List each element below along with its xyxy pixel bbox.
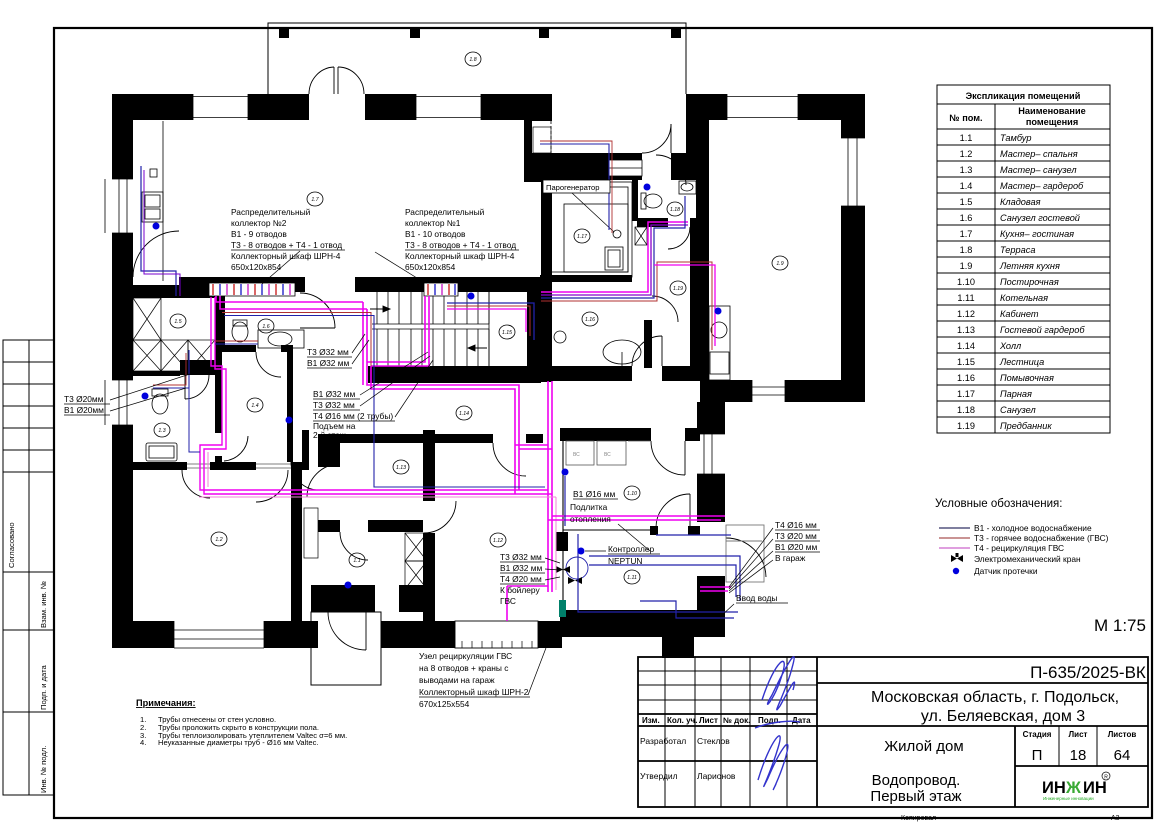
svg-text:Мастер– спальня: Мастер– спальня [1000, 149, 1078, 159]
svg-text:Мастер– гардероб: Мастер– гардероб [1000, 181, 1084, 191]
svg-text:NEPTUN: NEPTUN [608, 556, 642, 566]
svg-text:Датчик протечки: Датчик протечки [974, 566, 1038, 576]
svg-text:650х120х854: 650х120х854 [231, 262, 282, 272]
svg-text:Ж: Ж [1065, 779, 1081, 797]
svg-text:1.11: 1.11 [957, 293, 974, 303]
svg-text:Стадия: Стадия [1023, 730, 1052, 739]
svg-text:Неуказанные диаметры труб - Ø1: Неуказанные диаметры труб - Ø16 мм Valte… [158, 738, 319, 747]
svg-text:Стеклов: Стеклов [697, 736, 730, 746]
svg-text:Первый этаж: Первый этаж [870, 788, 961, 805]
svg-text:Кол. уч.: Кол. уч. [667, 716, 697, 725]
svg-text:1.9: 1.9 [776, 261, 783, 267]
svg-text:В1 - 9 отводов: В1 - 9 отводов [231, 229, 287, 239]
svg-text:R: R [1104, 775, 1108, 781]
svg-text:К бойлеру: К бойлеру [500, 585, 540, 595]
svg-text:Парная: Парная [1000, 389, 1032, 399]
svg-text:Инженерные инновации: Инженерные инновации [1043, 796, 1094, 801]
svg-text:Гостевой гардероб: Гостевой гардероб [1000, 325, 1085, 335]
svg-text:64: 64 [1114, 747, 1131, 764]
svg-text:Т3 Ø32 мм: Т3 Ø32 мм [500, 552, 542, 562]
svg-text:1.10: 1.10 [957, 277, 975, 287]
svg-text:Т4 Ø16 мм (2 трубы): Т4 Ø16 мм (2 трубы) [313, 411, 393, 421]
svg-text:Московская область, г. Подольс: Московская область, г. Подольск, [871, 689, 1119, 706]
svg-text:ВС: ВС [604, 452, 611, 458]
svg-text:М 1:75: М 1:75 [1094, 616, 1146, 635]
svg-text:1.12: 1.12 [493, 538, 503, 544]
svg-text:Инв. № подл.: Инв. № подл. [39, 746, 48, 793]
svg-text:Предбанник: Предбанник [1000, 421, 1052, 431]
svg-text:Согласовано: Согласовано [7, 522, 16, 568]
svg-text:1.2: 1.2 [215, 537, 222, 543]
svg-text:1.6: 1.6 [262, 324, 269, 330]
svg-text:Листов: Листов [1108, 730, 1137, 739]
svg-text:1.5: 1.5 [174, 319, 181, 325]
svg-text:2-й этаж: 2-й этаж [313, 430, 346, 440]
svg-text:Изм.: Изм. [642, 716, 660, 725]
svg-text:1.7: 1.7 [311, 197, 319, 203]
svg-text:Примечания:: Примечания: [136, 698, 196, 708]
svg-text:Дата: Дата [792, 716, 811, 725]
svg-text:Распределительный: Распределительный [405, 207, 485, 217]
svg-text:1.8: 1.8 [469, 57, 476, 63]
svg-text:Утвердил: Утвердил [640, 771, 678, 781]
svg-text:ВС: ВС [573, 452, 580, 458]
svg-text:ГВС: ГВС [500, 596, 516, 606]
svg-text:1.3: 1.3 [960, 165, 973, 175]
svg-text:1.5: 1.5 [960, 197, 973, 207]
svg-text:Распределительный: Распределительный [231, 207, 311, 217]
svg-text:Экспликация помещений: Экспликация помещений [966, 91, 1081, 101]
svg-text:1.18: 1.18 [670, 207, 680, 213]
svg-text:П: П [1032, 747, 1043, 764]
svg-text:Ларионов: Ларионов [697, 771, 736, 781]
svg-text:Контроллер: Контроллер [608, 544, 655, 554]
svg-text:1.11: 1.11 [627, 575, 637, 581]
svg-text:4.: 4. [140, 738, 146, 747]
svg-text:Т3 Ø32 мм: Т3 Ø32 мм [307, 347, 349, 357]
svg-text:Т3 - 8 отводов + Т4 - 1 отвод: Т3 - 8 отводов + Т4 - 1 отвод [231, 240, 342, 250]
svg-text:П-635/2025-ВК: П-635/2025-ВК [1030, 663, 1146, 682]
svg-text:В1 - 10 отводов: В1 - 10 отводов [405, 229, 466, 239]
svg-text:Кухня– гостиная: Кухня– гостиная [1000, 229, 1074, 239]
svg-text:Помывочная: Помывочная [1000, 373, 1054, 383]
svg-text:1.17: 1.17 [957, 389, 975, 399]
svg-text:Летняя кухня: Летняя кухня [999, 261, 1060, 271]
svg-text:Т4 Ø16 мм: Т4 Ø16 мм [775, 520, 817, 530]
svg-text:ИН: ИН [1083, 779, 1107, 797]
svg-text:помещения: помещения [1026, 117, 1078, 127]
svg-text:коллектор №1: коллектор №1 [405, 218, 461, 228]
svg-text:1.7: 1.7 [960, 229, 973, 239]
svg-text:650х120х854: 650х120х854 [405, 262, 456, 272]
svg-text:1.1: 1.1 [960, 133, 973, 143]
svg-text:Постирочная: Постирочная [1000, 277, 1059, 287]
svg-text:№ пом.: № пом. [949, 113, 982, 123]
svg-text:Условные обозначения:: Условные обозначения: [935, 498, 1062, 510]
svg-text:1.19: 1.19 [957, 421, 975, 431]
svg-text:1.8: 1.8 [960, 245, 973, 255]
svg-text:1.12: 1.12 [957, 309, 975, 319]
svg-text:1.13: 1.13 [396, 465, 406, 471]
svg-text:В1 Ø32 мм: В1 Ø32 мм [313, 389, 355, 399]
svg-text:выводами на гараж: выводами на гараж [419, 675, 495, 685]
svg-text:Подлитка: Подлитка [570, 502, 608, 512]
svg-text:Наименование: Наименование [1018, 106, 1085, 116]
svg-text:Т4 Ø20 мм: Т4 Ø20 мм [500, 574, 542, 584]
svg-text:Тамбур: Тамбур [1000, 133, 1032, 143]
svg-text:Коллекторный шкаф ШРН-4: Коллекторный шкаф ШРН-4 [231, 251, 341, 261]
svg-text:Узел рециркуляции ГВС: Узел рециркуляции ГВС [419, 651, 512, 661]
svg-text:1.13: 1.13 [957, 325, 975, 335]
svg-text:18: 18 [1070, 747, 1087, 764]
svg-text:Жилой дом: Жилой дом [884, 738, 963, 755]
svg-text:Коллекторный шкаф ШРН-4: Коллекторный шкаф ШРН-4 [405, 251, 515, 261]
svg-text:В гараж: В гараж [775, 553, 806, 563]
svg-text:1.17: 1.17 [577, 234, 588, 240]
svg-text:Т3 Ø20 мм: Т3 Ø20 мм [775, 531, 817, 541]
svg-text:Лестница: Лестница [999, 357, 1044, 367]
svg-text:Т3 Ø20мм: Т3 Ø20мм [64, 394, 104, 404]
svg-text:А3: А3 [1111, 815, 1120, 822]
svg-text:на 8 отводов + краны с: на 8 отводов + краны с [419, 663, 508, 673]
svg-text:1.18: 1.18 [957, 405, 975, 415]
svg-text:Взам. инв. №: Взам. инв. № [39, 581, 48, 628]
svg-text:1.10: 1.10 [627, 491, 637, 497]
svg-text:Т3 Ø32 мм: Т3 Ø32 мм [313, 400, 355, 410]
svg-text:1.3: 1.3 [158, 428, 165, 434]
svg-text:Холл: Холл [999, 341, 1021, 351]
svg-text:1.16: 1.16 [957, 373, 975, 383]
svg-text:Коллекторный шкаф ШРН-2: Коллекторный шкаф ШРН-2 [419, 687, 529, 697]
svg-text:Санузел: Санузел [1000, 405, 1036, 415]
svg-text:1.6: 1.6 [960, 213, 973, 223]
svg-text:Т3 - горячее водоснабжение (ГВ: Т3 - горячее водоснабжение (ГВС) [974, 533, 1109, 543]
svg-text:В1 Ø20 мм: В1 Ø20 мм [775, 542, 817, 552]
svg-text:В1 Ø32 мм: В1 Ø32 мм [307, 358, 349, 368]
svg-text:Копировал: Копировал [901, 815, 936, 822]
svg-text:1.4: 1.4 [251, 403, 258, 409]
svg-text:Кладовая: Кладовая [1000, 197, 1041, 207]
svg-text:отопления: отопления [570, 514, 611, 524]
svg-text:1.14: 1.14 [459, 411, 469, 417]
svg-text:Электромеханический кран: Электромеханический кран [974, 554, 1081, 564]
svg-text:Лист: Лист [1069, 730, 1088, 739]
svg-text:1.15: 1.15 [957, 357, 975, 367]
svg-text:Санузел гостевой: Санузел гостевой [1000, 213, 1080, 223]
svg-text:ул. Беляевская, дом 3: ул. Беляевская, дом 3 [921, 708, 1085, 725]
svg-text:ИН: ИН [1042, 779, 1066, 797]
svg-text:Водопровод.: Водопровод. [872, 772, 961, 789]
svg-text:Котельная: Котельная [1000, 293, 1048, 303]
svg-text:коллектор №2: коллектор №2 [231, 218, 287, 228]
svg-text:Лист: Лист [699, 716, 718, 725]
svg-text:1.14: 1.14 [957, 341, 975, 351]
svg-text:№ док.: № док. [723, 716, 750, 725]
svg-text:1.2: 1.2 [960, 149, 973, 159]
svg-text:Т3 - 8 отводов + Т4 - 1 отвод: Т3 - 8 отводов + Т4 - 1 отвод [405, 240, 516, 250]
svg-text:Кабинет: Кабинет [1000, 309, 1039, 319]
svg-text:1.4: 1.4 [960, 181, 973, 191]
svg-text:Мастер– санузел: Мастер– санузел [1000, 165, 1077, 175]
svg-text:В1 - холодное водоснабжение: В1 - холодное водоснабжение [974, 523, 1092, 533]
svg-text:1.1: 1.1 [353, 558, 360, 564]
svg-text:Терраса: Терраса [1000, 245, 1035, 255]
svg-text:Подп. и дата: Подп. и дата [39, 664, 48, 710]
svg-text:Парогенератор: Парогенератор [546, 183, 600, 192]
svg-text:1.19: 1.19 [673, 286, 683, 292]
svg-text:В1 Ø16 мм: В1 Ø16 мм [573, 489, 615, 499]
svg-text:670х125х554: 670х125х554 [419, 699, 470, 709]
svg-text:Т4 - рециркуляция ГВС: Т4 - рециркуляция ГВС [974, 543, 1064, 553]
svg-text:1.9: 1.9 [960, 261, 973, 271]
svg-text:В1 Ø20мм: В1 Ø20мм [64, 405, 104, 415]
svg-text:1.16: 1.16 [585, 317, 595, 323]
svg-text:Ввод воды: Ввод воды [736, 593, 777, 603]
svg-text:1.15: 1.15 [502, 330, 512, 336]
svg-text:В1 Ø32 мм: В1 Ø32 мм [500, 563, 542, 573]
svg-text:Разработал: Разработал [640, 736, 686, 746]
